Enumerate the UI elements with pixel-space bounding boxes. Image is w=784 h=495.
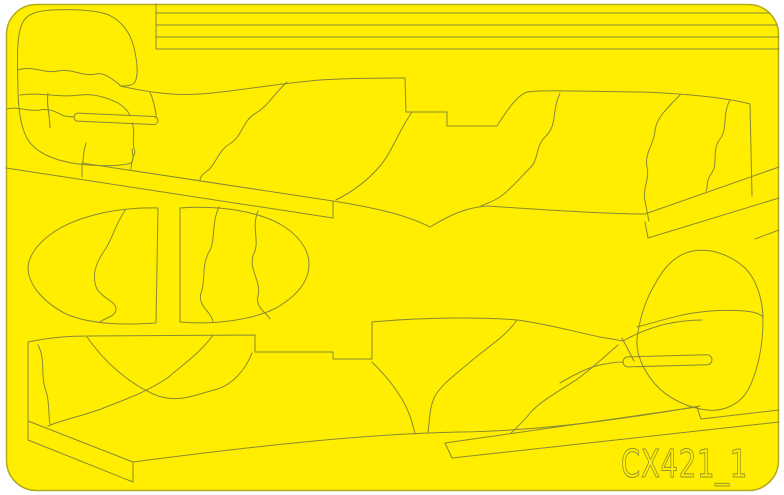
mask-sheet-scan: CX421_1 bbox=[0, 0, 784, 495]
mask-sheet bbox=[7, 5, 779, 491]
mask-sheet-drawing: CX421_1 bbox=[0, 0, 784, 495]
sheet-code-engraving: CX421_1 bbox=[621, 442, 748, 486]
